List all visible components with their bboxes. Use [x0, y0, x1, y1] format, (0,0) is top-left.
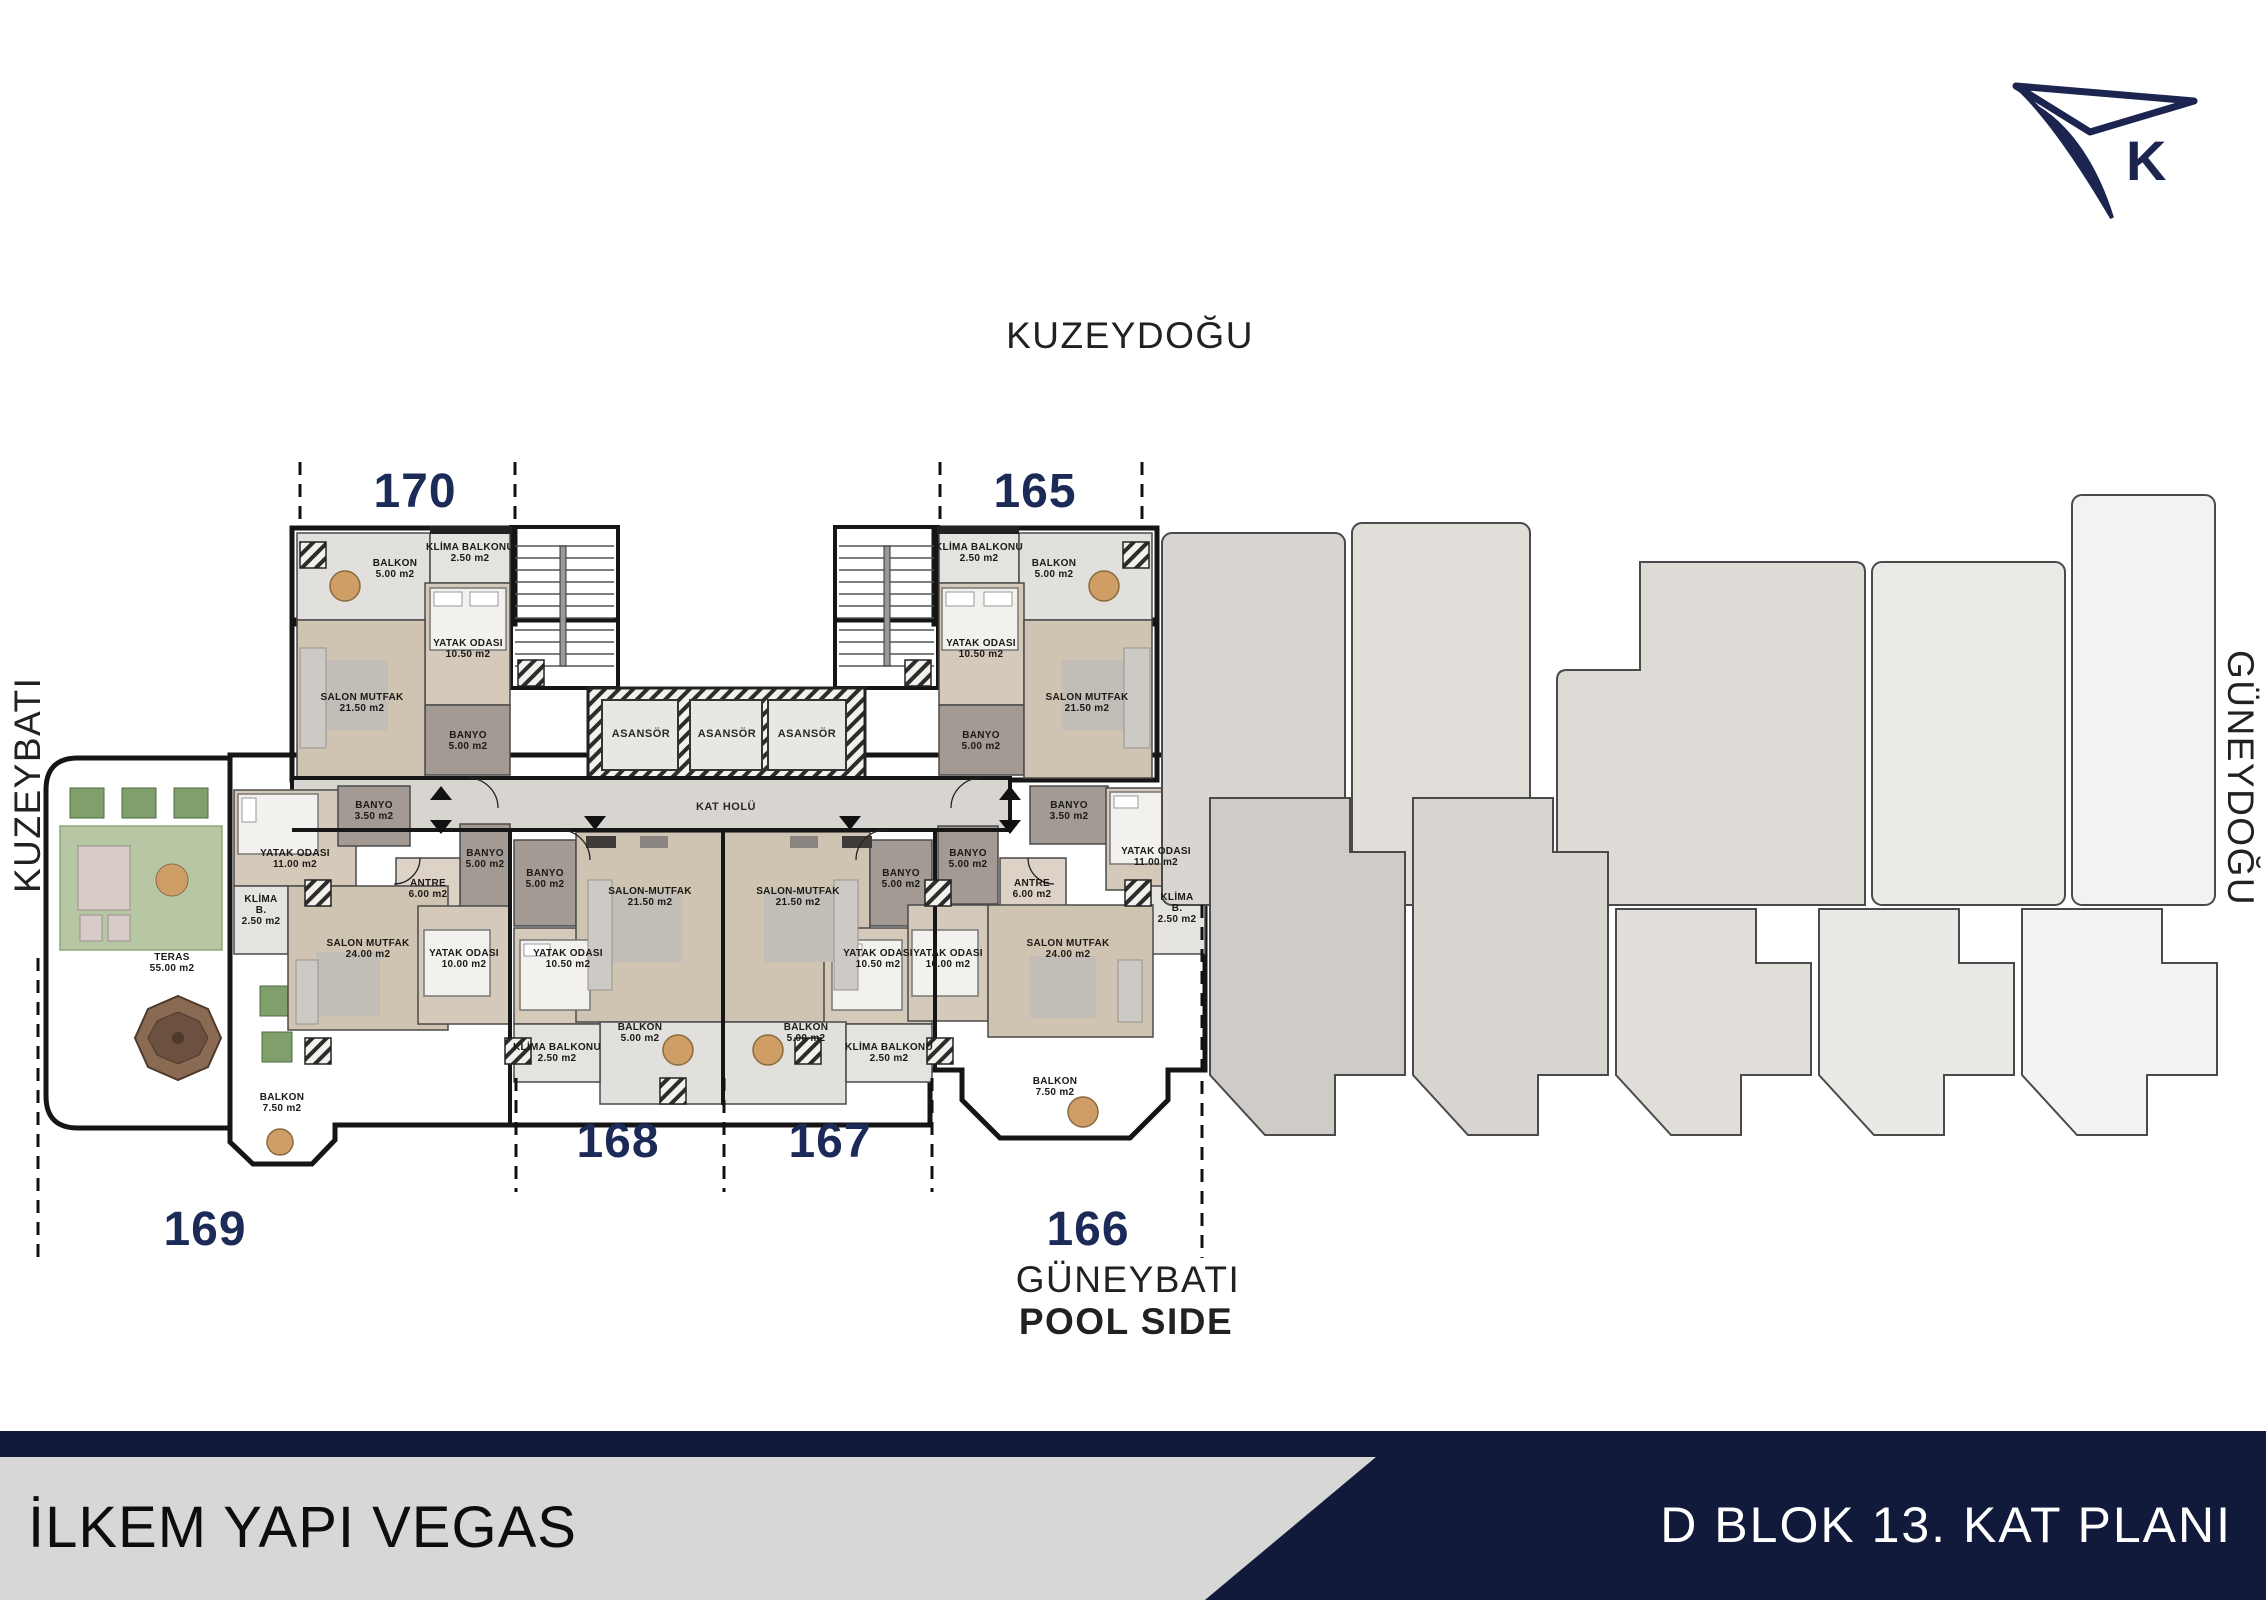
direction-northeast: KUZEYDOĞU — [1006, 315, 1254, 356]
stair-rail — [884, 546, 890, 666]
unit-number-169: 169 — [163, 1203, 246, 1256]
label-balkon-168: BALKON5.00 m2 — [618, 1022, 663, 1044]
planter — [260, 986, 290, 1016]
stove — [842, 836, 872, 848]
direction-southwest: GÜNEYBATI — [1016, 1259, 1241, 1300]
unit-number-167: 167 — [788, 1115, 871, 1168]
direction-northwest: KUZEYBATI — [7, 677, 48, 893]
label-antre-166: ANTRE6.00 m2 — [1013, 878, 1052, 900]
label-balkon-165: BALKON5.00 m2 — [1032, 558, 1077, 580]
label-kat-holu: KAT HOLÜ — [696, 800, 756, 813]
pillow — [946, 592, 974, 606]
pillow — [434, 592, 462, 606]
balcony-table — [1068, 1097, 1098, 1127]
planter — [70, 788, 104, 818]
label-banyo-169a: BANYO3.50 m2 — [355, 800, 394, 822]
label-balkon-167: BALKON5.00 m2 — [784, 1022, 829, 1044]
balcony-table — [753, 1035, 783, 1065]
label-banyo-169b: BANYO5.00 m2 — [466, 848, 505, 870]
label-balkon-166: BALKON7.50 m2 — [1033, 1076, 1078, 1098]
garden-chair — [80, 915, 102, 941]
rail — [937, 526, 1019, 534]
label-banyo-166a: BANYO3.50 m2 — [1050, 800, 1089, 822]
label-teras-169: TERAS55.00 m2 — [150, 952, 195, 974]
north-compass: K — [2016, 86, 2194, 218]
label-asansor-2: ASANSÖR — [698, 727, 757, 740]
roof-block — [1872, 562, 2065, 905]
balcony-table — [267, 1129, 293, 1155]
unit-number-166: 166 — [1046, 1203, 1129, 1256]
rail — [430, 526, 512, 534]
garden-table — [156, 864, 188, 896]
planter — [262, 1032, 292, 1062]
roof-strip — [2022, 909, 2217, 1135]
balcony-table — [663, 1035, 693, 1065]
roof-strip — [1616, 909, 1811, 1135]
planter — [122, 788, 156, 818]
label-balkon-169: BALKON7.50 m2 — [260, 1092, 305, 1114]
garden-sofa — [78, 846, 130, 910]
unit-number-170: 170 — [373, 465, 456, 518]
rug — [316, 952, 380, 1016]
pillow — [984, 592, 1012, 606]
roof-strip — [1819, 909, 2014, 1135]
roof-blocks — [1162, 495, 2217, 1135]
sink — [640, 836, 668, 848]
unit-number-168: 168 — [576, 1115, 659, 1168]
room-balkon-167 — [723, 1022, 846, 1104]
compass-k-label: K — [2126, 129, 2166, 192]
pillow — [242, 798, 256, 822]
project-title: İLKEM YAPI VEGAS — [28, 1495, 577, 1560]
stove — [586, 836, 616, 848]
label-banyo-167: BANYO5.00 m2 — [882, 868, 921, 890]
gazebo — [135, 996, 221, 1080]
balcony-table — [1089, 571, 1119, 601]
sofa — [1118, 960, 1142, 1022]
unit-number-165: 165 — [993, 465, 1076, 518]
label-banyo-170: BANYO5.00 m2 — [449, 730, 488, 752]
balcony-table — [330, 571, 360, 601]
direction-southeast: GÜNEYDOĞU — [2220, 650, 2261, 906]
stair-rail — [560, 546, 566, 666]
label-asansor-3: ASANSÖR — [778, 727, 837, 740]
rug — [1030, 956, 1096, 1018]
floor-plan-canvas: BALKON5.00 m2KLİMA BALKONU2.50 m2YATAK O… — [0, 0, 2266, 1600]
label-asansor-1: ASANSÖR — [612, 727, 671, 740]
plan-title: D BLOK 13. KAT PLANI — [1660, 1497, 2232, 1553]
pillow — [1114, 796, 1138, 808]
pool-side-label: POOL SIDE — [1019, 1301, 1233, 1342]
pillow — [470, 592, 498, 606]
label-banyo-168: BANYO5.00 m2 — [526, 868, 565, 890]
courtyard-gap — [620, 522, 833, 686]
title-banner: İLKEM YAPI VEGAS D BLOK 13. KAT PLANI — [0, 1431, 2266, 1600]
label-banyo-165: BANYO5.00 m2 — [962, 730, 1001, 752]
label-banyo-166b: BANYO5.00 m2 — [949, 848, 988, 870]
label-balkon-170: BALKON5.00 m2 — [373, 558, 418, 580]
sink — [790, 836, 818, 848]
roof-block — [2072, 495, 2215, 905]
garden-chair — [108, 915, 130, 941]
planter — [174, 788, 208, 818]
label-antre-169: ANTRE6.00 m2 — [409, 878, 448, 900]
sofa — [296, 960, 318, 1024]
